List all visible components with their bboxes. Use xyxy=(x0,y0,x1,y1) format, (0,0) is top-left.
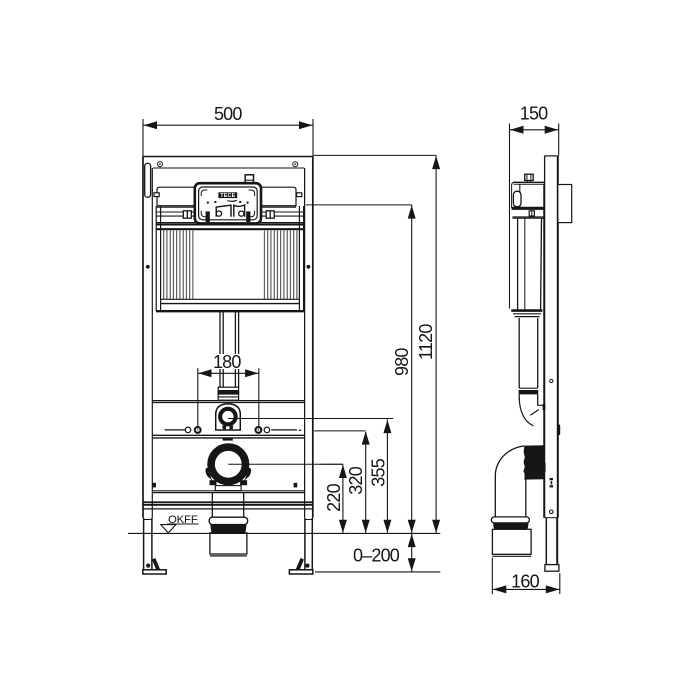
svg-text:500: 500 xyxy=(214,104,242,124)
svg-text:1120: 1120 xyxy=(416,324,436,360)
svg-text:160: 160 xyxy=(511,571,539,591)
svg-text:150: 150 xyxy=(520,104,548,124)
svg-text:0–200: 0–200 xyxy=(353,545,400,565)
svg-text:220: 220 xyxy=(324,483,344,511)
svg-text:TECE: TECE xyxy=(220,193,235,199)
svg-text:320: 320 xyxy=(346,466,366,494)
svg-text:355: 355 xyxy=(368,458,388,486)
svg-text:980: 980 xyxy=(392,348,412,376)
svg-text:180: 180 xyxy=(213,352,241,372)
